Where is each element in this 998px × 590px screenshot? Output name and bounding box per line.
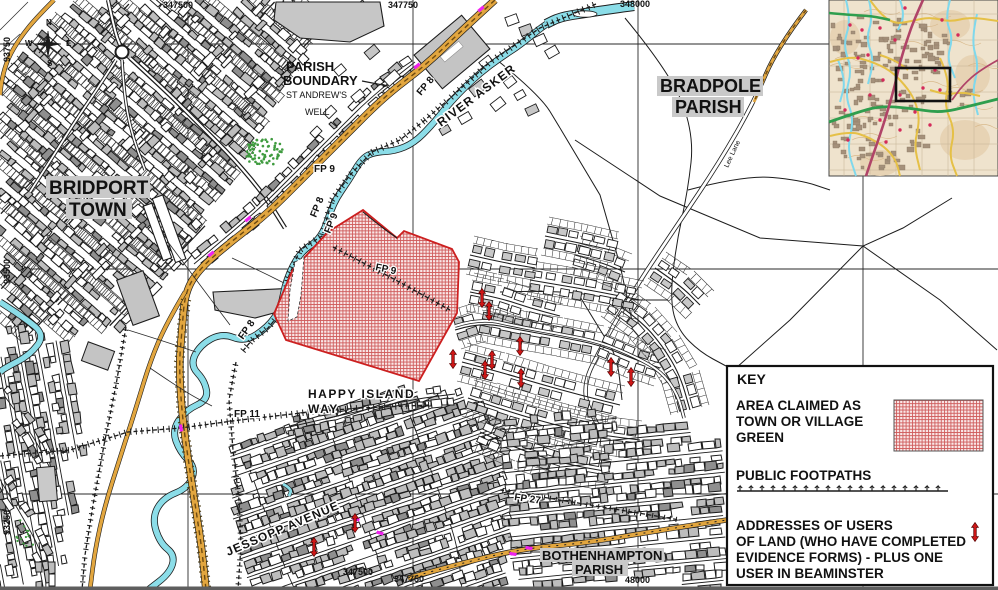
svg-text:48000: 48000 — [625, 575, 650, 585]
svg-text:PARISH: PARISH — [286, 59, 334, 74]
svg-text:BRIDPORT: BRIDPORT — [49, 178, 149, 199]
svg-text:AREA CLAIMED AS: AREA CLAIMED AS — [736, 398, 861, 413]
svg-text:PUBLIC FOOTPATHS: PUBLIC FOOTPATHS — [736, 468, 871, 483]
svg-text:93500: 93500 — [2, 259, 12, 284]
svg-text:FP 9: FP 9 — [314, 164, 335, 175]
svg-text:OF LAND (WHO HAVE COMPLETED: OF LAND (WHO HAVE COMPLETED — [736, 534, 966, 549]
svg-text:347500: 347500 — [343, 567, 373, 577]
svg-text:GREEN: GREEN — [736, 430, 784, 445]
svg-text:KEY: KEY — [737, 371, 766, 387]
svg-text:ADDRESSES OF USERS: ADDRESSES OF USERS — [736, 518, 893, 533]
svg-text:N: N — [46, 18, 52, 27]
svg-text:93250: 93250 — [2, 510, 12, 535]
svg-text:TOWN OR VILLAGE: TOWN OR VILLAGE — [736, 414, 863, 429]
svg-text:348000: 348000 — [620, 0, 650, 9]
svg-text:BRADPOLE: BRADPOLE — [660, 76, 761, 96]
svg-text:BOTHENHAMPTON: BOTHENHAMPTON — [542, 548, 662, 563]
svg-text:ST ANDREW'S: ST ANDREW'S — [286, 90, 347, 100]
svg-text:347750: 347750 — [394, 574, 424, 584]
svg-text:EVIDENCE FORMS) - PLUS ONE: EVIDENCE FORMS) - PLUS ONE — [736, 550, 943, 565]
svg-text:USER IN BEAMINSTER: USER IN BEAMINSTER — [736, 566, 884, 581]
svg-text:347750: 347750 — [388, 0, 418, 10]
svg-text:FP 11: FP 11 — [234, 409, 260, 420]
svg-text:347500: 347500 — [163, 0, 193, 10]
svg-text:WELL: WELL — [305, 107, 330, 117]
svg-text:PARISH: PARISH — [575, 562, 623, 577]
svg-text:S: S — [47, 59, 53, 68]
svg-text:W: W — [25, 39, 33, 48]
svg-text:PARISH: PARISH — [675, 97, 742, 117]
svg-text:TOWN: TOWN — [69, 200, 127, 221]
svg-text:BOUNDARY: BOUNDARY — [283, 73, 358, 88]
svg-text:HAPPY ISLAND: HAPPY ISLAND — [308, 387, 415, 401]
svg-text:E: E — [66, 39, 72, 48]
svg-text:WAY: WAY — [308, 402, 339, 416]
svg-text:93750: 93750 — [2, 37, 12, 62]
